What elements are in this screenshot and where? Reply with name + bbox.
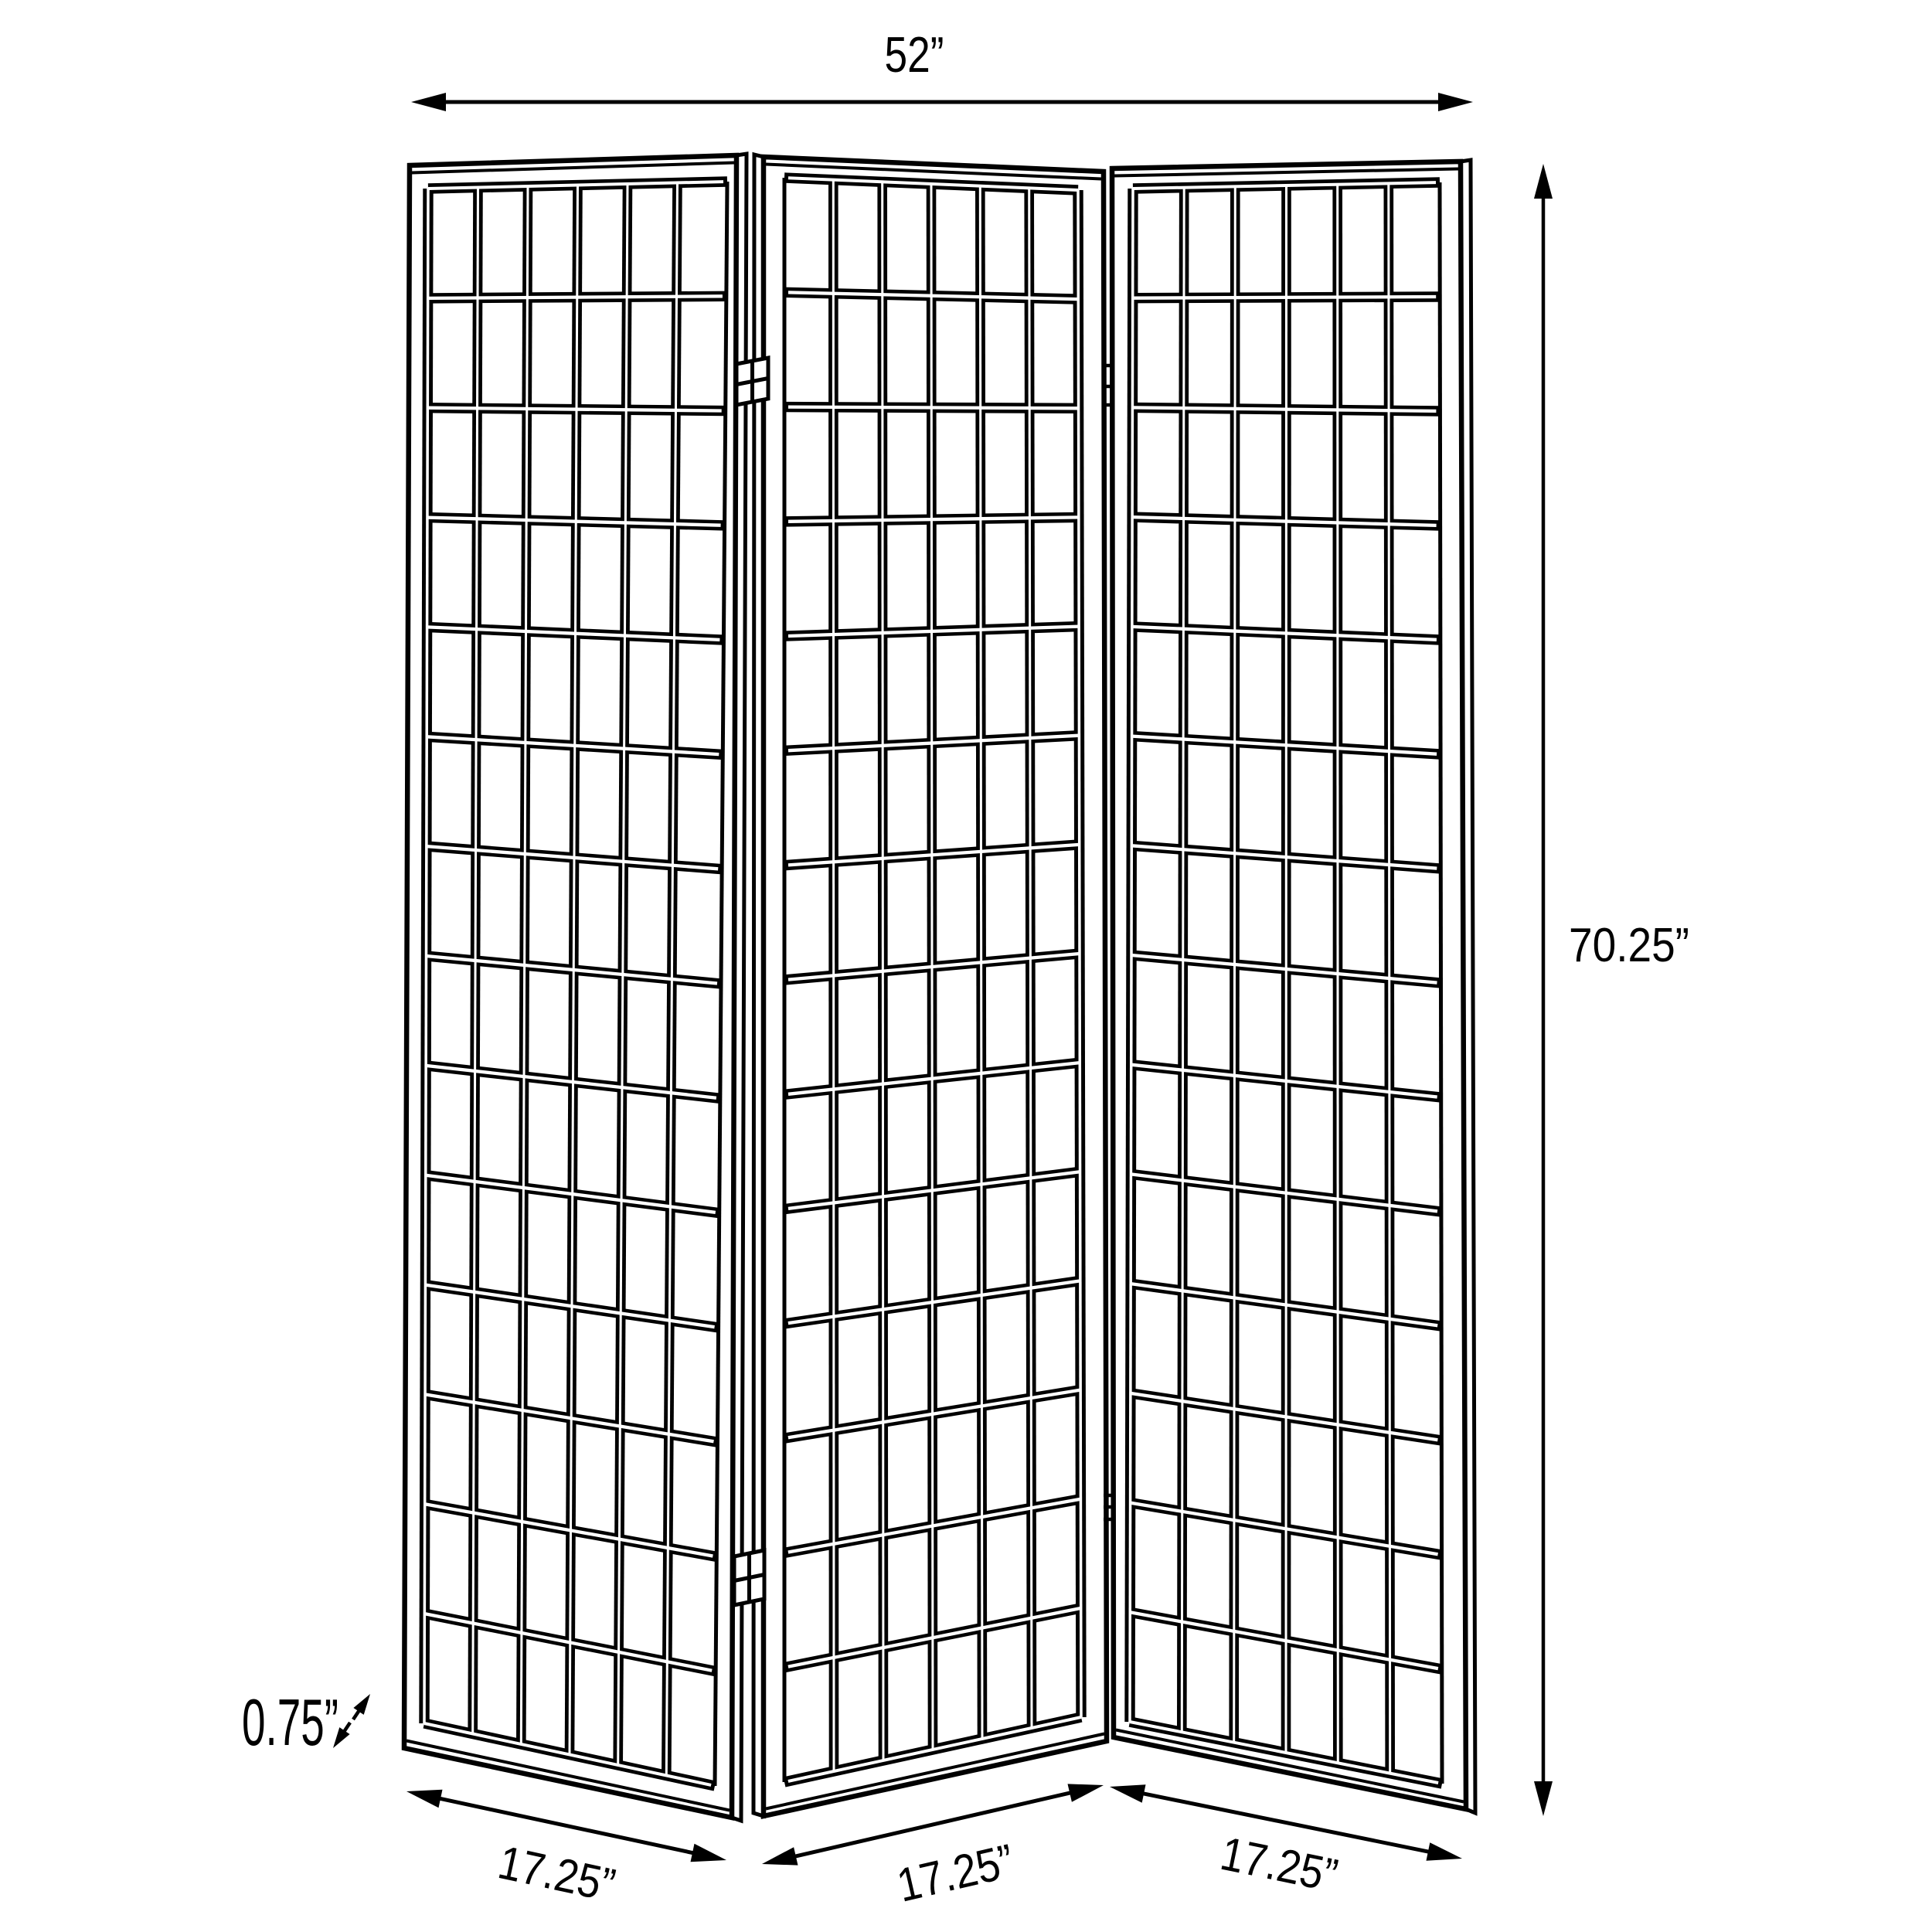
svg-text:0.75”: 0.75” — [242, 1686, 338, 1760]
svg-text:52”: 52” — [885, 26, 944, 83]
svg-text:70.25”: 70.25” — [1569, 919, 1689, 972]
